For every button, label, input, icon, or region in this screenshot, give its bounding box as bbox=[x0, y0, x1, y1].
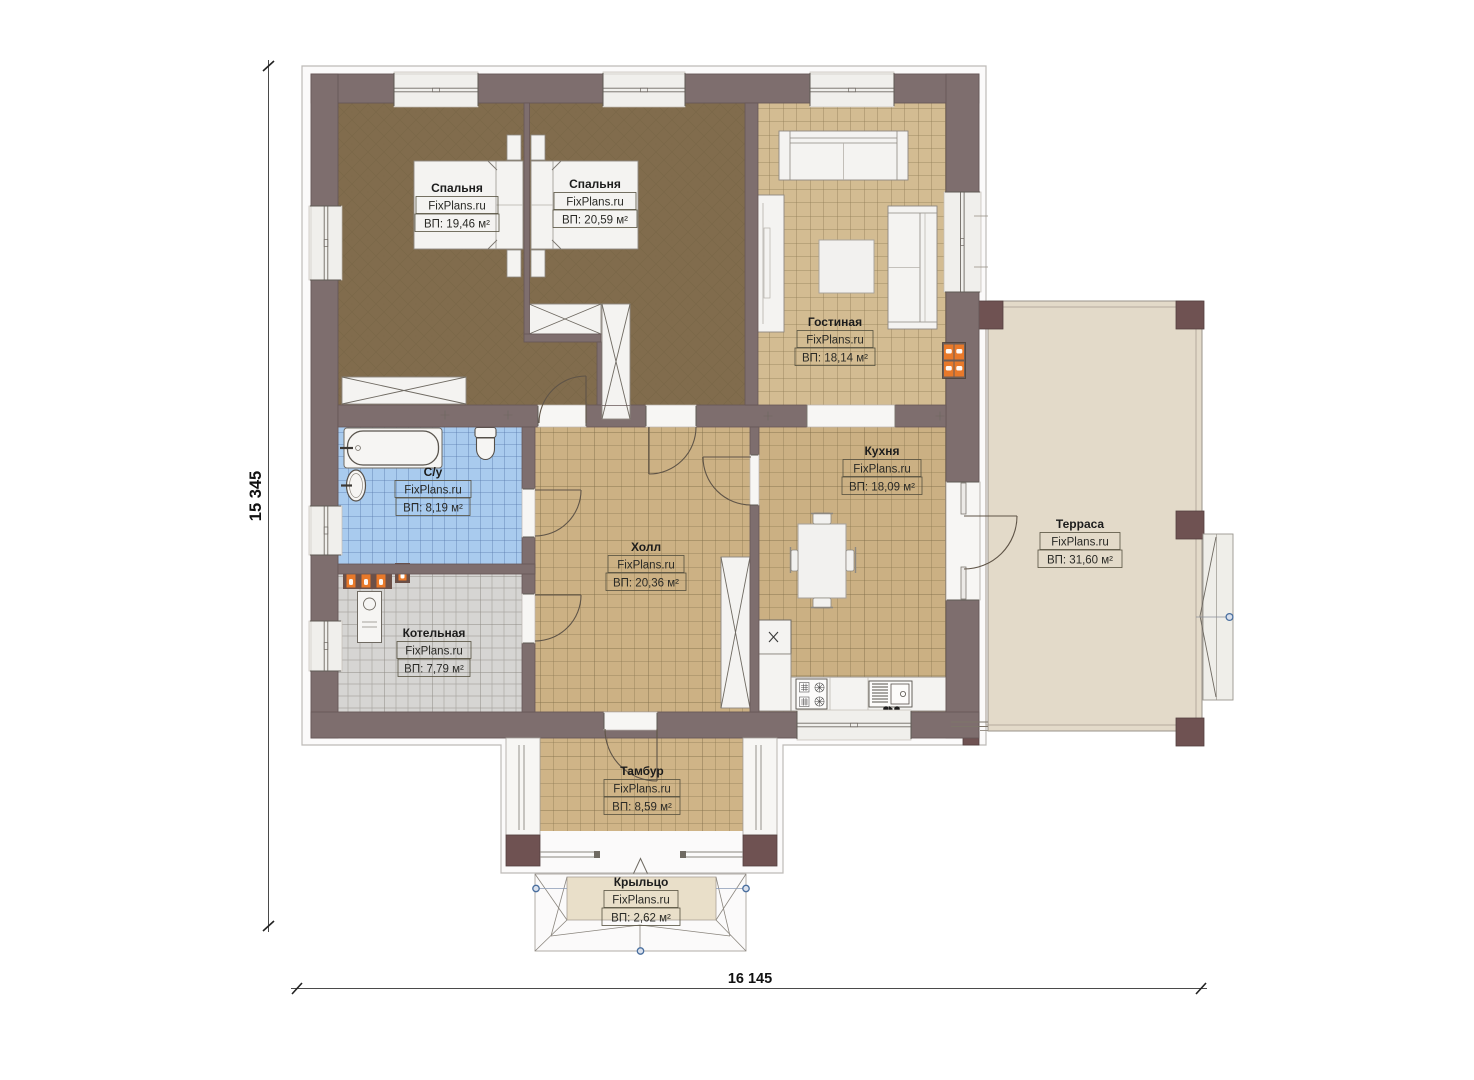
svg-text:Тамбур: Тамбур bbox=[620, 764, 664, 778]
svg-text:FixPlans.ru: FixPlans.ru bbox=[566, 197, 624, 209]
svg-text:FixPlans.ru: FixPlans.ru bbox=[612, 895, 670, 907]
svg-text:Котельная: Котельная bbox=[403, 626, 466, 640]
svg-text:Кухня: Кухня bbox=[864, 444, 899, 458]
svg-text:FixPlans.ru: FixPlans.ru bbox=[405, 646, 463, 658]
svg-text:15 345: 15 345 bbox=[247, 471, 265, 521]
svg-text:FixPlans.ru: FixPlans.ru bbox=[617, 560, 675, 572]
svg-text:FixPlans.ru: FixPlans.ru bbox=[404, 485, 462, 497]
svg-text:16 145: 16 145 bbox=[728, 971, 772, 987]
svg-text:Терраса: Терраса bbox=[1056, 517, 1105, 531]
svg-text:FixPlans.ru: FixPlans.ru bbox=[853, 464, 911, 476]
svg-text:ВП: 7,79 м²: ВП: 7,79 м² bbox=[404, 664, 464, 676]
svg-text:ВП: 19,46 м²: ВП: 19,46 м² bbox=[424, 219, 490, 231]
svg-text:FixPlans.ru: FixPlans.ru bbox=[428, 201, 486, 213]
svg-text:Спальня: Спальня bbox=[431, 181, 483, 195]
svg-text:ВП: 8,19 м²: ВП: 8,19 м² bbox=[403, 503, 463, 515]
svg-text:ВП: 20,59 м²: ВП: 20,59 м² bbox=[562, 215, 628, 227]
svg-text:FixPlans.ru: FixPlans.ru bbox=[1051, 537, 1109, 549]
svg-text:С/у: С/у bbox=[424, 465, 443, 479]
svg-text:ВП: 2,62 м²: ВП: 2,62 м² bbox=[611, 913, 671, 925]
svg-text:ВП: 31,60 м²: ВП: 31,60 м² bbox=[1047, 555, 1113, 567]
svg-text:ВП: 20,36 м²: ВП: 20,36 м² bbox=[613, 578, 679, 590]
svg-text:FixPlans.ru: FixPlans.ru bbox=[806, 335, 864, 347]
svg-text:Спальня: Спальня bbox=[569, 177, 621, 191]
svg-text:Гостиная: Гостиная bbox=[808, 315, 862, 329]
svg-text:ВП: 18,09 м²: ВП: 18,09 м² bbox=[849, 482, 915, 494]
svg-text:Холл: Холл bbox=[631, 540, 661, 554]
svg-text:ВП: 18,14 м²: ВП: 18,14 м² bbox=[802, 353, 868, 365]
svg-text:Крыльцо: Крыльцо bbox=[614, 875, 669, 889]
svg-text:ВП: 8,59 м²: ВП: 8,59 м² bbox=[612, 802, 672, 814]
svg-text:FixPlans.ru: FixPlans.ru bbox=[613, 784, 671, 796]
